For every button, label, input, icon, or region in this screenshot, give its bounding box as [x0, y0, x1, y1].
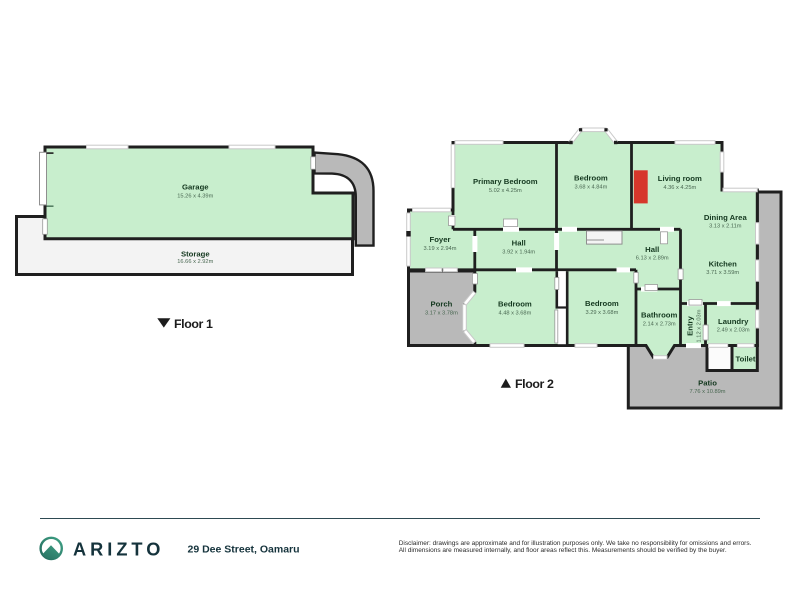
svg-text:Floor 1: Floor 1: [174, 317, 213, 331]
svg-text:3.13 x 2.11m: 3.13 x 2.11m: [709, 224, 742, 230]
svg-text:15.26 x 4.39m: 15.26 x 4.39m: [177, 194, 213, 200]
svg-text:ARIZTO: ARIZTO: [73, 540, 164, 560]
svg-text:Kitchen: Kitchen: [709, 259, 737, 268]
svg-text:16.66 x 2.92m: 16.66 x 2.92m: [177, 259, 213, 265]
svg-text:3.29 x 3.68m: 3.29 x 3.68m: [585, 310, 618, 316]
svg-text:7.76 x 10.89m: 7.76 x 10.89m: [689, 389, 725, 395]
svg-text:3.19 x 2.94m: 3.19 x 2.94m: [424, 246, 457, 252]
svg-text:6.13 x 2.89m: 6.13 x 2.89m: [636, 256, 669, 262]
svg-text:5.02 x 4.25m: 5.02 x 4.25m: [489, 188, 522, 194]
svg-text:Foyer: Foyer: [430, 235, 451, 244]
svg-text:2.49 x 2.03m: 2.49 x 2.03m: [717, 328, 750, 334]
svg-text:29 Dee Street, Oamaru: 29 Dee Street, Oamaru: [188, 544, 300, 556]
svg-text:Hall: Hall: [645, 245, 659, 254]
svg-text:Bedroom: Bedroom: [574, 173, 608, 182]
svg-text:Dining Area: Dining Area: [704, 213, 748, 222]
svg-text:Floor 2: Floor 2: [515, 377, 554, 391]
svg-text:Toilet: Toilet: [736, 355, 756, 364]
svg-text:Disclaimer: drawings are appro: Disclaimer: drawings are approximate and…: [399, 540, 752, 547]
svg-text:Porch: Porch: [431, 300, 453, 309]
svg-text:Bathroom: Bathroom: [641, 311, 677, 320]
svg-text:Living room: Living room: [658, 174, 702, 183]
svg-text:All dimensions are measured in: All dimensions are measured internally, …: [399, 547, 727, 554]
svg-text:Garage: Garage: [182, 183, 209, 192]
svg-text:Hall: Hall: [512, 238, 526, 247]
svg-text:3.68 x 4.84m: 3.68 x 4.84m: [574, 184, 607, 190]
svg-text:3.71 x 3.59m: 3.71 x 3.59m: [706, 270, 739, 276]
svg-text:4.48 x 3.68m: 4.48 x 3.68m: [498, 310, 531, 316]
svg-text:Patio: Patio: [698, 378, 717, 387]
svg-text:1.12 x 2.03m: 1.12 x 2.03m: [697, 309, 703, 342]
svg-text:Primary Bedroom: Primary Bedroom: [473, 177, 538, 186]
svg-text:3.17 x 3.78m: 3.17 x 3.78m: [425, 310, 458, 316]
svg-text:Storage: Storage: [181, 249, 210, 258]
svg-text:2.14 x 2.73m: 2.14 x 2.73m: [643, 321, 676, 327]
svg-text:Laundry: Laundry: [718, 317, 749, 326]
svg-text:Entry: Entry: [686, 315, 695, 335]
svg-text:3.92 x 1.94m: 3.92 x 1.94m: [502, 249, 535, 255]
svg-text:Bedroom: Bedroom: [585, 299, 619, 308]
svg-text:Bedroom: Bedroom: [498, 300, 532, 309]
svg-text:4.36 x 4.25m: 4.36 x 4.25m: [663, 185, 696, 191]
